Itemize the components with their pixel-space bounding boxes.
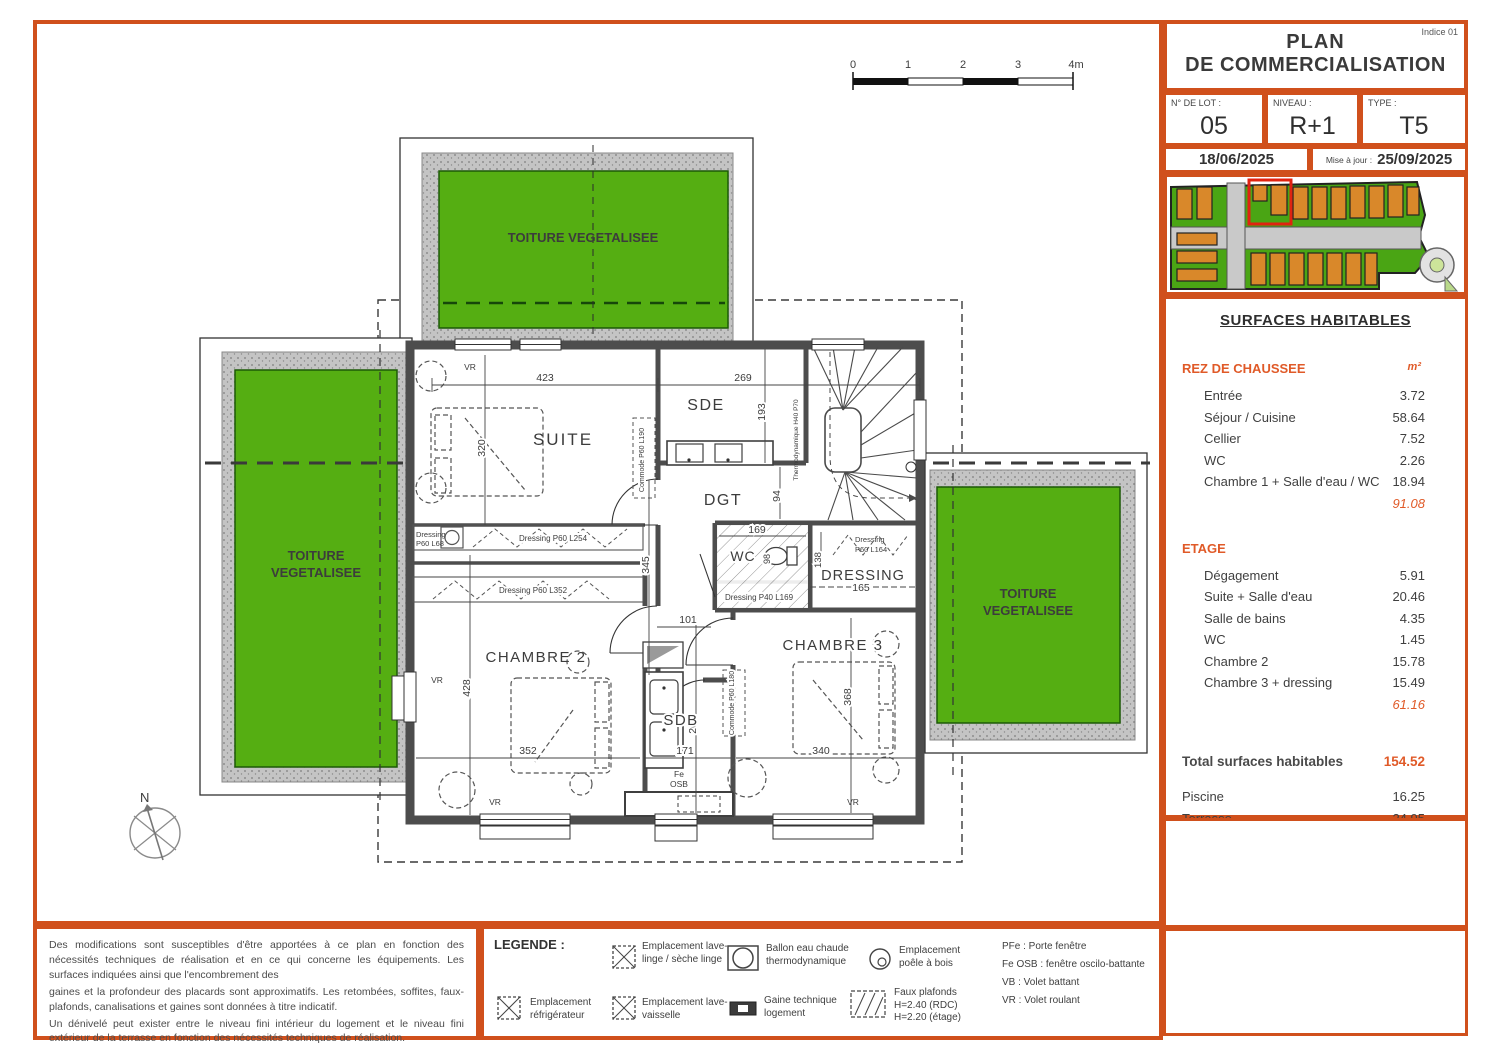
row-label: Suite + Salle d'eau <box>1204 589 1312 604</box>
svg-text:2: 2 <box>960 59 966 71</box>
page-title-line2: DE COMMERCIALISATION <box>1167 54 1464 77</box>
grand-total-value: 154.52 <box>1384 754 1425 769</box>
surfaces-panel: SURFACES HABITABLES REZ DE CHAUSSEE m² E… <box>1163 296 1468 818</box>
svg-text:Dressing P60 L254: Dressing P60 L254 <box>519 534 588 543</box>
green-roof-right: TOITURE VEGETALISEE <box>925 453 1147 753</box>
svg-text:P60 L68: P60 L68 <box>416 539 444 548</box>
table-row: Chambre 2 15.78 <box>1166 654 1465 669</box>
row-label: Dégagement <box>1204 568 1278 583</box>
svg-text:DRESSING: DRESSING <box>821 568 905 584</box>
legend-item-label: Ballon eau chaude thermodynamique <box>766 943 861 968</box>
svg-text:269: 269 <box>734 372 752 384</box>
scale-bar: 0 1 2 3 4m <box>850 59 1084 90</box>
svg-text:101: 101 <box>679 614 697 626</box>
table-row: Entrée 3.72 <box>1166 388 1465 403</box>
table-row: Piscine 16.25 <box>1166 789 1465 804</box>
row-label: Entrée <box>1204 388 1242 403</box>
svg-text:SDB: SDB <box>663 712 698 729</box>
svg-text:CHAMBRE 2: CHAMBRE 2 <box>485 649 586 666</box>
row-value: 4.35 <box>1400 611 1425 626</box>
green-roof-top: TOITURE VEGETALISEE <box>400 138 753 345</box>
update-date-cell: Mise à jour : 25/09/2025 <box>1310 146 1468 173</box>
table-row: Dégagement 5.91 <box>1166 568 1465 583</box>
svg-text:P60 L164: P60 L164 <box>855 545 887 554</box>
svg-text:1: 1 <box>905 59 911 71</box>
surfaces-title: SURFACES HABITABLES <box>1166 312 1465 329</box>
abbreviation: VB : Volet battant <box>1002 977 1145 988</box>
etage-header: ETAGE <box>1166 541 1465 556</box>
grand-total-row: Total surfaces habitables 154.52 <box>1166 754 1465 769</box>
legend-item-label: Faux plafonds H=2.40 (RDC) H=2.20 (étage… <box>894 987 990 1025</box>
abbreviation: PFe : Porte fenêtre <box>1002 941 1145 952</box>
row-value: 15.78 <box>1392 654 1425 669</box>
floor-plan-drawing: 0 1 2 3 4m TOITURE VEGETALISEE <box>37 24 1159 921</box>
title-block: Indice 01 PLAN DE COMMERCIALISATION <box>1163 20 1468 92</box>
date-cell: 18/06/2025 <box>1163 146 1310 173</box>
svg-text:TOITURE: TOITURE <box>1000 586 1057 601</box>
svg-text:VR: VR <box>464 362 476 372</box>
floor-plan-panel: 0 1 2 3 4m TOITURE VEGETALISEE <box>33 20 1163 925</box>
row-label: Piscine <box>1182 789 1224 804</box>
row-value: 7.52 <box>1400 431 1425 446</box>
fridge-icon <box>496 995 522 1021</box>
wood-stove-icon <box>868 947 892 971</box>
legend-box: LEGENDE : Emplacement lave-linge / sèche… <box>480 925 1163 1040</box>
svg-text:Thermodynamique H40 P70: Thermodynamique H40 P70 <box>793 399 800 481</box>
svg-text:Dressing: Dressing <box>855 535 885 544</box>
table-row: Salle de bains 4.35 <box>1166 611 1465 626</box>
type-label: TYPE : <box>1368 98 1397 108</box>
date-value: 18/06/2025 <box>1199 151 1274 168</box>
etage-label: ETAGE <box>1182 541 1226 556</box>
svg-text:Dressing P60 L352: Dressing P60 L352 <box>499 586 568 595</box>
svg-text:VR: VR <box>847 797 859 807</box>
svg-text:Commode P60 L190: Commode P60 L190 <box>639 428 646 492</box>
svg-text:340: 340 <box>812 745 830 757</box>
rdc-total: 91.08 <box>1166 496 1465 511</box>
table-row: WC 2.26 <box>1166 453 1465 468</box>
water-heater-icon <box>727 945 759 971</box>
table-row: Suite + Salle d'eau 20.46 <box>1166 589 1465 604</box>
legend-item-label: Emplacement poêle à bois <box>899 945 987 970</box>
table-row: Séjour / Cuisine 58.64 <box>1166 410 1465 425</box>
svg-text:98: 98 <box>762 554 772 564</box>
svg-text:WC: WC <box>730 548 755 564</box>
row-value: 2.26 <box>1400 453 1425 468</box>
disclaimer-box: Des modifications sont susceptibles d'êt… <box>33 925 480 1040</box>
svg-text:Fe: Fe <box>674 769 684 779</box>
row-label: WC <box>1204 632 1226 647</box>
svg-text:94: 94 <box>771 490 783 502</box>
svg-text:TOITURE: TOITURE <box>288 548 345 563</box>
type-cell: TYPE : T5 <box>1360 92 1468 146</box>
false-ceiling-icon <box>849 989 887 1019</box>
svg-text:423: 423 <box>536 372 554 384</box>
row-value: 1.45 <box>1400 632 1425 647</box>
svg-text:VR: VR <box>431 675 443 685</box>
svg-text:OSB: OSB <box>670 779 688 789</box>
lot-cell: N° DE LOT : 05 <box>1163 92 1265 146</box>
svg-text:345: 345 <box>640 556 652 574</box>
disclaimer-paragraph: Un dénivelé peut exister entre le niveau… <box>49 1017 464 1047</box>
svg-text:193: 193 <box>756 403 768 421</box>
update-label: Mise à jour : <box>1326 155 1372 165</box>
plan-de-commercialisation-page: 0 1 2 3 4m TOITURE VEGETALISEE <box>0 0 1500 1059</box>
site-plan-map <box>1167 177 1464 292</box>
svg-text:Dressing P40 L169: Dressing P40 L169 <box>725 593 794 602</box>
svg-text:VEGETALISEE: VEGETALISEE <box>271 565 361 580</box>
table-row: Chambre 1 + Salle d'eau / WC 18.94 <box>1166 474 1465 489</box>
rdc-rows: Entrée 3.72 Séjour / Cuisine 58.64 Celli… <box>1166 388 1465 489</box>
lot-value: 05 <box>1166 112 1262 141</box>
row-value: 3.72 <box>1400 388 1425 403</box>
unit-label: m² <box>1408 361 1421 376</box>
table-row: Chambre 3 + dressing 15.49 <box>1166 675 1465 690</box>
disclaimer-paragraph: gaines et la profondeur des placards son… <box>49 985 464 1015</box>
svg-text:Dressing: Dressing <box>416 530 446 539</box>
abbreviation-list: PFe : Porte fenêtreFe OSB : fenêtre osci… <box>1002 941 1145 1013</box>
legend-item-label: Gaine technique logement <box>764 995 856 1020</box>
sde-vanity <box>667 441 773 465</box>
svg-text:CHAMBRE 3: CHAMBRE 3 <box>782 637 883 654</box>
niveau-cell: NIVEAU : R+1 <box>1265 92 1360 146</box>
etage-rows: Dégagement 5.91 Suite + Salle d'eau 20.4… <box>1166 568 1465 691</box>
abbreviation: VR : Volet roulant <box>1002 995 1145 1006</box>
svg-text:N: N <box>140 790 149 805</box>
table-row: WC 1.45 <box>1166 632 1465 647</box>
svg-text:3: 3 <box>1015 59 1021 71</box>
washer-icon <box>611 943 637 971</box>
row-label: WC <box>1204 453 1226 468</box>
svg-text:352: 352 <box>519 745 537 757</box>
lot-label: N° DE LOT : <box>1171 98 1221 108</box>
row-label: Salle de bains <box>1204 611 1286 626</box>
row-value: 58.64 <box>1392 410 1425 425</box>
legend-title: LEGENDE : <box>494 937 565 952</box>
legend-item-label: Emplacement lave-linge / sèche linge <box>642 941 728 966</box>
page-title: PLAN <box>1167 31 1464 54</box>
svg-text:4m: 4m <box>1068 59 1083 71</box>
etage-total: 61.16 <box>1166 697 1465 712</box>
empty-panel-1 <box>1163 818 1468 928</box>
row-label: Séjour / Cuisine <box>1204 410 1296 425</box>
svg-text:0: 0 <box>850 59 856 71</box>
north-compass: N <box>130 790 180 860</box>
update-value: 25/09/2025 <box>1377 151 1452 168</box>
svg-text:DGT: DGT <box>704 492 742 509</box>
row-label: Chambre 3 + dressing <box>1204 675 1332 690</box>
svg-text:171: 171 <box>676 745 694 757</box>
row-value: 18.94 <box>1392 474 1425 489</box>
table-row: Cellier 7.52 <box>1166 431 1465 446</box>
row-label: Cellier <box>1204 431 1241 446</box>
row-label: Chambre 2 <box>1204 654 1268 669</box>
indice-label: Indice 01 <box>1421 27 1458 37</box>
svg-text:TOITURE VEGETALISEE: TOITURE VEGETALISEE <box>508 230 659 245</box>
type-value: T5 <box>1363 112 1465 141</box>
row-label: Chambre 1 + Salle d'eau / WC <box>1204 474 1380 489</box>
svg-text:320: 320 <box>476 439 488 457</box>
empty-panel-2 <box>1163 928 1468 1036</box>
rdc-label: REZ DE CHAUSSEE <box>1182 361 1306 376</box>
svg-text:VR: VR <box>489 797 501 807</box>
row-value: 20.46 <box>1392 589 1425 604</box>
rdc-header: REZ DE CHAUSSEE m² <box>1166 361 1465 376</box>
niveau-label: NIVEAU : <box>1273 98 1312 108</box>
site-plan-box <box>1163 173 1468 296</box>
svg-text:169: 169 <box>748 524 766 536</box>
svg-text:SUITE: SUITE <box>533 430 593 449</box>
technical-duct-icon <box>729 1001 757 1017</box>
grand-total-label: Total surfaces habitables <box>1182 754 1343 769</box>
row-value: 5.91 <box>1400 568 1425 583</box>
svg-text:Commode P60 L180: Commode P60 L180 <box>729 671 736 735</box>
niveau-value: R+1 <box>1268 112 1357 141</box>
dishwasher-icon <box>611 995 637 1021</box>
row-value: 16.25 <box>1392 789 1425 804</box>
svg-text:138: 138 <box>813 552 824 568</box>
disclaimer-paragraph: Des modifications sont susceptibles d'êt… <box>49 938 464 983</box>
abbreviation: Fe OSB : fenêtre oscilo-battante <box>1002 959 1145 970</box>
svg-text:SDE: SDE <box>687 397 724 414</box>
legend-item-label: Emplacement lave-vaisselle <box>642 997 737 1022</box>
row-value: 15.49 <box>1392 675 1425 690</box>
svg-text:368: 368 <box>842 688 854 706</box>
svg-text:VEGETALISEE: VEGETALISEE <box>983 603 1073 618</box>
svg-text:428: 428 <box>461 679 473 697</box>
